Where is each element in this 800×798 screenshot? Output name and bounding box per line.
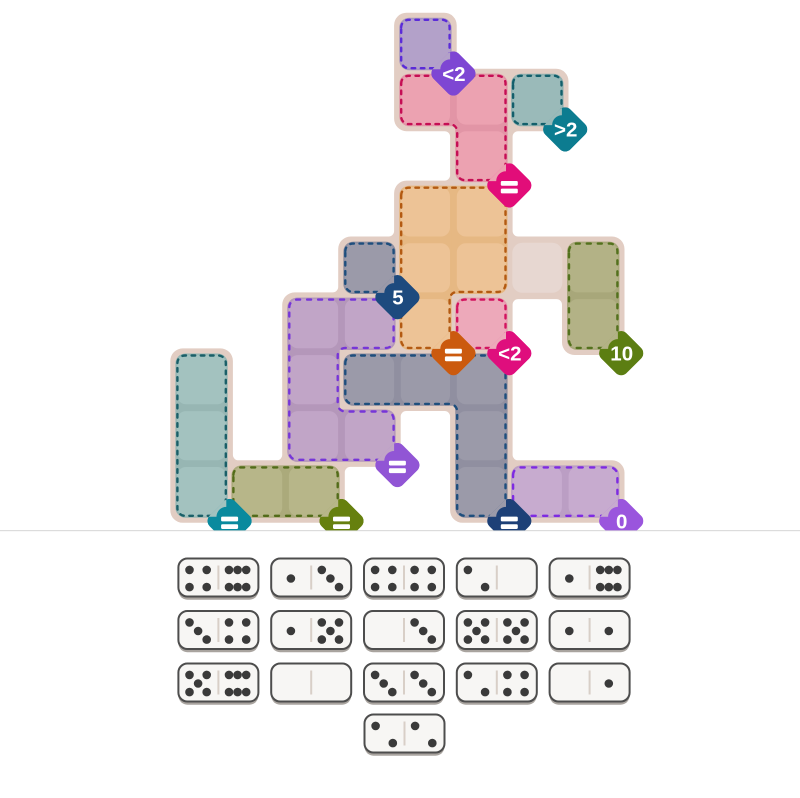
svg-text:10: 10	[610, 343, 633, 366]
svg-text:>2: >2	[554, 119, 577, 142]
svg-text:<2: <2	[498, 343, 521, 366]
svg-text:0: 0	[616, 510, 627, 533]
svg-text:<2: <2	[442, 63, 465, 86]
svg-text:5: 5	[392, 287, 403, 310]
